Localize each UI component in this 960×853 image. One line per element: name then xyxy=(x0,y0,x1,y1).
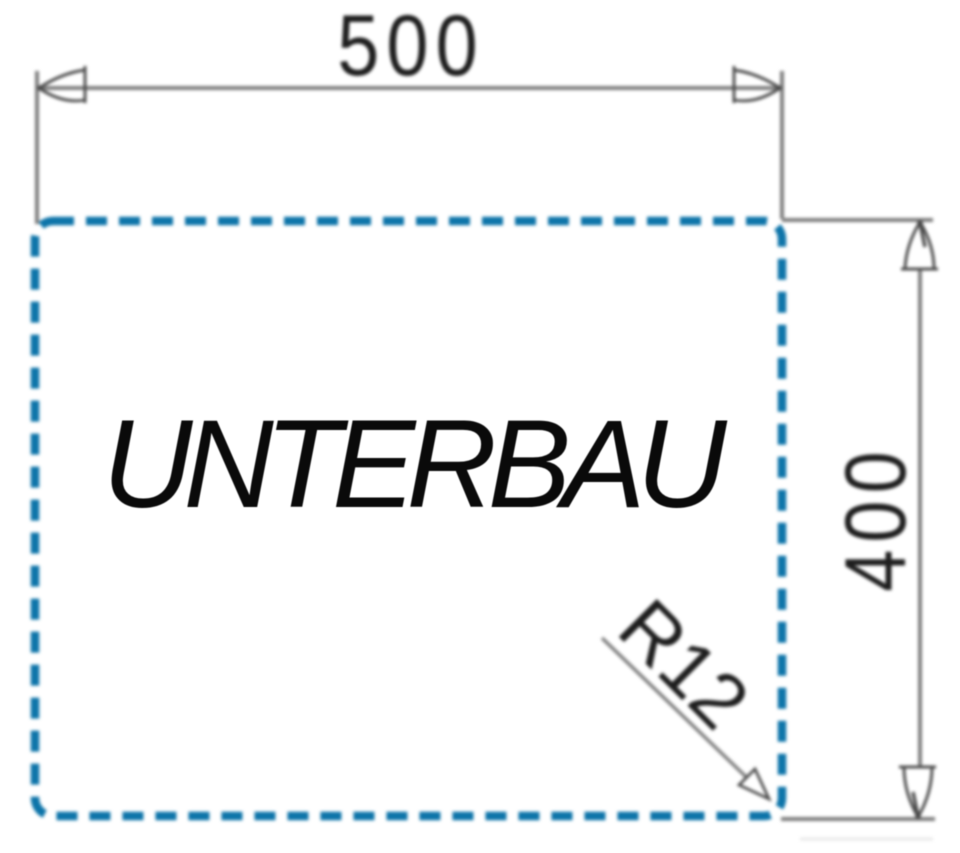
svg-text:UNTERBAU: UNTERBAU xyxy=(102,395,727,534)
